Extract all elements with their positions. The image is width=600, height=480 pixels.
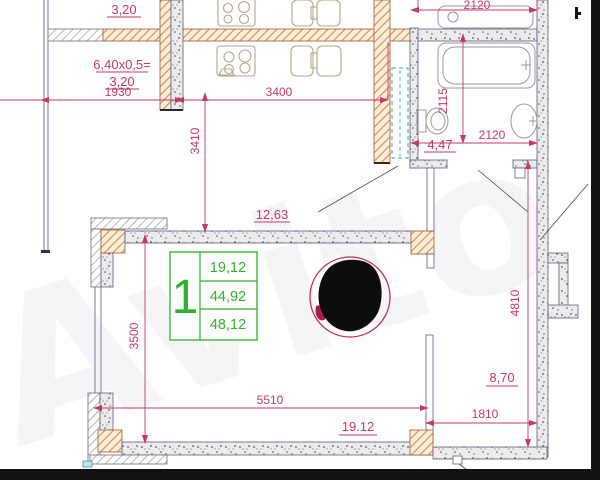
frame-right-bar bbox=[591, 0, 600, 480]
column-bottomleft bbox=[98, 430, 122, 452]
frame-bottom-bar bbox=[0, 469, 600, 480]
kitchen-area-label: 12,63 bbox=[256, 207, 289, 222]
dim-3500: 3500 bbox=[127, 322, 141, 349]
vent-marker bbox=[83, 461, 92, 467]
wall-living-top bbox=[125, 231, 412, 243]
floor-plan-screenshot: Avito bbox=[0, 0, 600, 480]
door-handle-marker bbox=[453, 456, 462, 464]
unit-info-table: 1 19,12 44,92 48,12 bbox=[170, 252, 257, 340]
dim-4810: 4810 bbox=[508, 289, 522, 316]
balcony-top-area-label: 3,20 bbox=[111, 2, 136, 17]
wall-shaft-bottom bbox=[548, 305, 578, 318]
partition-lower bbox=[426, 335, 433, 443]
balcony-glazing-endcap bbox=[41, 250, 50, 253]
door-frame-stub bbox=[515, 168, 525, 178]
redaction-blob bbox=[318, 260, 381, 332]
column-living-topleft bbox=[101, 230, 125, 253]
column-bottom-mid bbox=[410, 430, 433, 455]
hall-area-label: 8,70 bbox=[489, 370, 514, 385]
wall-top-bath bbox=[412, 29, 537, 41]
balcony-formula-label: 6,40х0,5= bbox=[93, 57, 150, 72]
area-with-balcony-value: 48,12 bbox=[210, 317, 246, 333]
wall-bottom bbox=[122, 442, 432, 455]
dim-2120: 2120 bbox=[479, 128, 506, 142]
wall-bathroom-bottom-right bbox=[513, 160, 537, 168]
wall-living-top-grey bbox=[91, 218, 167, 229]
partition-stub bbox=[427, 254, 434, 268]
wall-bottom-right bbox=[433, 447, 547, 459]
living-area-label: 19.12 bbox=[342, 419, 375, 434]
dim-3400: 3400 bbox=[266, 85, 293, 99]
wall-kitchen-left bbox=[171, 0, 183, 110]
dim-2115: 2115 bbox=[436, 88, 450, 114]
living-area-value: 19,12 bbox=[210, 260, 246, 276]
wall-bottomleft-grey bbox=[88, 393, 100, 463]
wall-top-bearing bbox=[103, 29, 412, 41]
wall-shaft-right bbox=[559, 263, 568, 307]
wall-bottomleft-band bbox=[90, 455, 167, 464]
total-area-value: 44,92 bbox=[210, 289, 246, 305]
dim-1810: 1810 bbox=[472, 407, 499, 421]
column-living-topright bbox=[411, 231, 434, 254]
dim-1930: 1930 bbox=[105, 85, 132, 99]
wall-right-outer bbox=[537, 0, 548, 457]
partition-upper bbox=[427, 168, 434, 231]
bathroom-area-label: 4,47 bbox=[427, 137, 452, 152]
stray-mark bbox=[575, 7, 578, 19]
wall-bathroom-bottom-left bbox=[410, 160, 447, 168]
wall-bathroom-left bbox=[410, 28, 418, 168]
dim-3410: 3410 bbox=[188, 127, 202, 154]
unit-number: 1 bbox=[172, 271, 199, 324]
stray-mark bbox=[578, 12, 581, 15]
dim-2120-top: 2120 bbox=[464, 0, 491, 12]
dim-5510: 5510 bbox=[257, 393, 284, 407]
wall-top-grey bbox=[48, 29, 103, 41]
wall-shaft-top bbox=[548, 253, 568, 263]
wall-kitchen-left-bearing bbox=[160, 0, 171, 110]
redaction bbox=[310, 257, 390, 337]
floor-plan-svg: Avito bbox=[0, 0, 600, 480]
wall-living-left-grey bbox=[91, 229, 101, 287]
wall-living-left bbox=[101, 253, 113, 287]
